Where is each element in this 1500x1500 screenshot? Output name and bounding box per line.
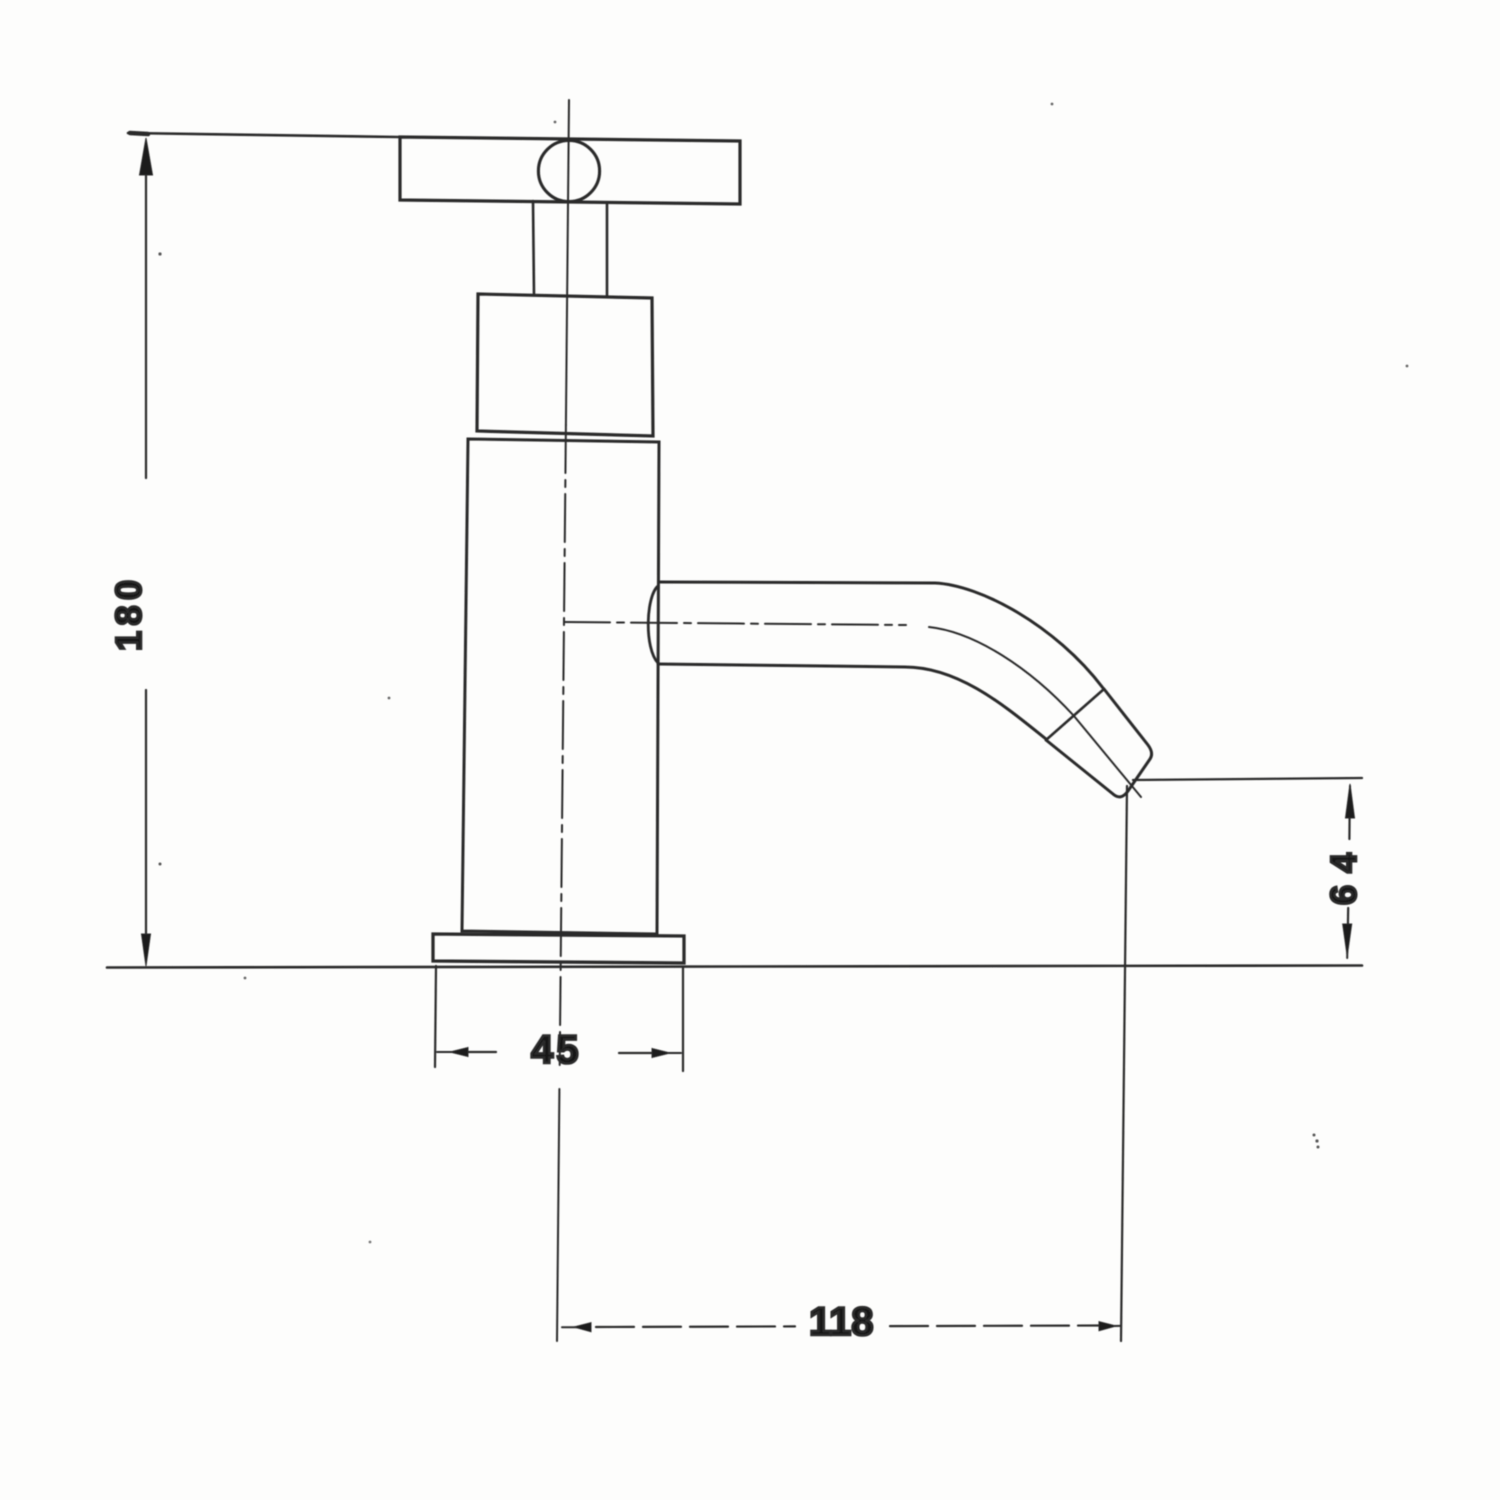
svg-text:45: 45 <box>531 1028 582 1072</box>
svg-text:180: 180 <box>108 574 149 651</box>
svg-text:64: 64 <box>1323 841 1364 905</box>
svg-text:118: 118 <box>809 1300 874 1344</box>
